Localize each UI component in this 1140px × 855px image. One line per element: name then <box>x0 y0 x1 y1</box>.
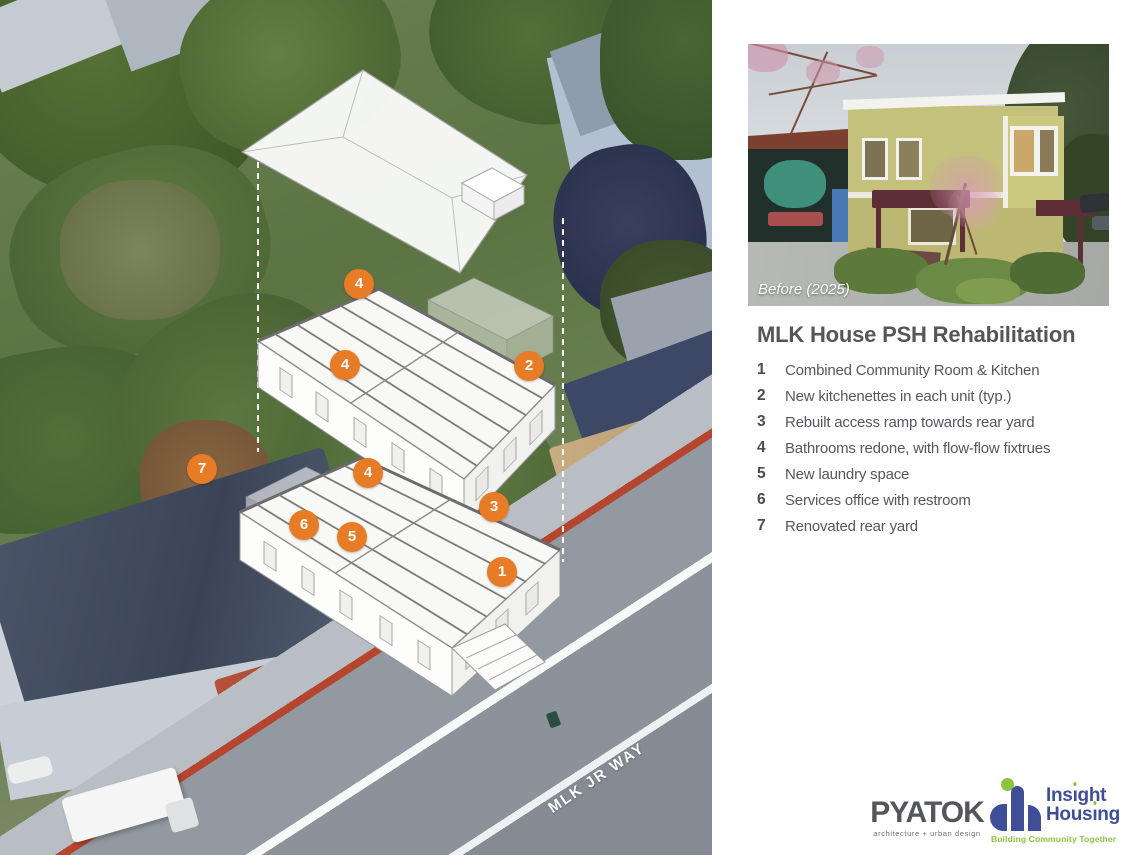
key-marker: 4 <box>344 269 374 299</box>
insight-logo-line2: Housıng <box>1046 805 1120 824</box>
exploded-axon-diagram <box>0 0 712 855</box>
legend-item-number: 7 <box>757 517 785 535</box>
key-marker: 2 <box>514 351 544 381</box>
photo-shop-door <box>832 189 848 249</box>
presentation-slide: MLK JR WAY <box>0 0 1140 855</box>
legend-item-number: 2 <box>757 387 785 405</box>
insight-icon-h-shoulder <box>1028 805 1041 831</box>
legend-item-text: New laundry space <box>785 466 909 483</box>
green-dotted-i: ı <box>1092 804 1097 825</box>
pyatok-logo-name: PYATOK <box>866 798 988 828</box>
insight-icon-i-body <box>990 804 1007 831</box>
legend-item-text: Renovated rear yard <box>785 518 918 535</box>
legend-item: 5New laundry space <box>757 461 1129 487</box>
legend-item-text: Bathrooms redone, with flow-flow fixtrue… <box>785 440 1050 457</box>
pyatok-logo: PYATOK architecture + urban design <box>866 798 988 838</box>
roof-plane <box>242 70 527 273</box>
legend-item: 7Renovated rear yard <box>757 513 1129 539</box>
key-marker: 3 <box>479 492 509 522</box>
green-dotted-i: ı <box>1073 785 1078 806</box>
legend-item-text: Rebuilt access ramp towards rear yard <box>785 414 1034 431</box>
photo-bush <box>956 278 1020 304</box>
legend-item-text: New kitchenettes in each unit (typ.) <box>785 388 1011 405</box>
legend-list: 1Combined Community Room & Kitchen 2New … <box>757 357 1129 539</box>
legend-item: 3Rebuilt access ramp towards rear yard <box>757 409 1129 435</box>
photo-blossom-cluster <box>856 46 884 68</box>
photo-window <box>896 138 922 180</box>
legend-item: 6Services office with restroom <box>757 487 1129 513</box>
legend-item: 2New kitchenettes in each unit (typ.) <box>757 383 1129 409</box>
key-marker: 1 <box>487 557 517 587</box>
photo-parked-car <box>1079 193 1109 214</box>
insight-logo-line1: Insıght <box>1046 786 1120 805</box>
insight-housing-icon <box>990 778 1042 832</box>
photo-blossom-cluster <box>748 44 788 72</box>
photo-mural-text <box>768 212 823 226</box>
photo-window <box>862 138 888 180</box>
photo-bay-glass <box>1036 126 1058 176</box>
aerial-site-view: MLK JR WAY <box>0 0 712 855</box>
legend-item-number: 5 <box>757 465 785 483</box>
photo-blossom-canopy <box>948 186 1000 228</box>
legend-item-text: Services office with restroom <box>785 492 971 509</box>
photo-awning-post <box>876 208 881 252</box>
insight-housing-tagline: Building Community Together <box>991 834 1136 844</box>
photo-blossom-cluster <box>806 60 840 84</box>
photo-mural <box>764 160 826 208</box>
photo-porch-post <box>1078 216 1083 264</box>
key-marker: 4 <box>353 458 383 488</box>
photo-caption: Before (2025) <box>758 281 850 298</box>
key-marker: 7 <box>187 454 217 484</box>
key-marker: 5 <box>337 522 367 552</box>
photo-bay-glass <box>1010 126 1038 176</box>
photo-parked-car <box>1092 216 1109 230</box>
legend-item-number: 3 <box>757 413 785 431</box>
legend-item-text: Combined Community Room & Kitchen <box>785 362 1039 379</box>
before-photo: Before (2025) <box>748 44 1109 306</box>
legend-item-number: 6 <box>757 491 785 509</box>
legend-item-number: 1 <box>757 361 785 379</box>
insight-housing-logo-text: Insıght Housıng <box>1046 786 1120 824</box>
insight-icon-h-stem <box>1011 786 1024 831</box>
pyatok-logo-tagline: architecture + urban design <box>866 829 988 838</box>
page-title: MLK House PSH Rehabilitation <box>757 322 1127 348</box>
legend-item: 4Bathrooms redone, with flow-flow fixtru… <box>757 435 1129 461</box>
legend-item: 1Combined Community Room & Kitchen <box>757 357 1129 383</box>
key-marker: 6 <box>289 510 319 540</box>
photo-bush <box>1010 252 1085 294</box>
key-marker: 4 <box>330 350 360 380</box>
legend-item-number: 4 <box>757 439 785 457</box>
